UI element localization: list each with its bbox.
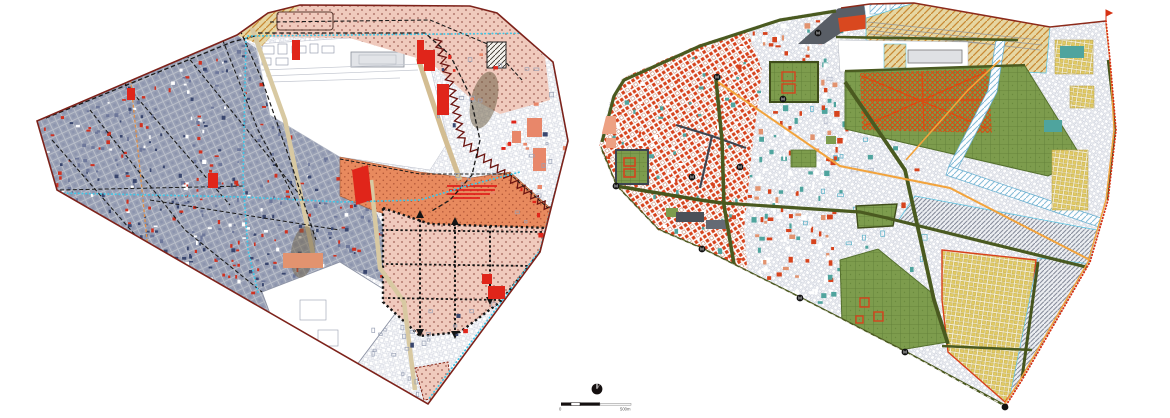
svg-text:M: M [715,75,719,80]
svg-text:M: M [816,31,820,36]
svg-text:M: M [781,97,785,102]
svg-text:500m: 500m [620,407,631,412]
svg-text:0: 0 [559,407,562,412]
svg-text:M: M [700,247,704,252]
svg-text:M: M [903,350,907,355]
svg-text:M: M [690,175,694,180]
svg-text:M: M [738,165,742,170]
svg-text:M: M [614,184,618,189]
svg-text:M: M [798,296,802,301]
